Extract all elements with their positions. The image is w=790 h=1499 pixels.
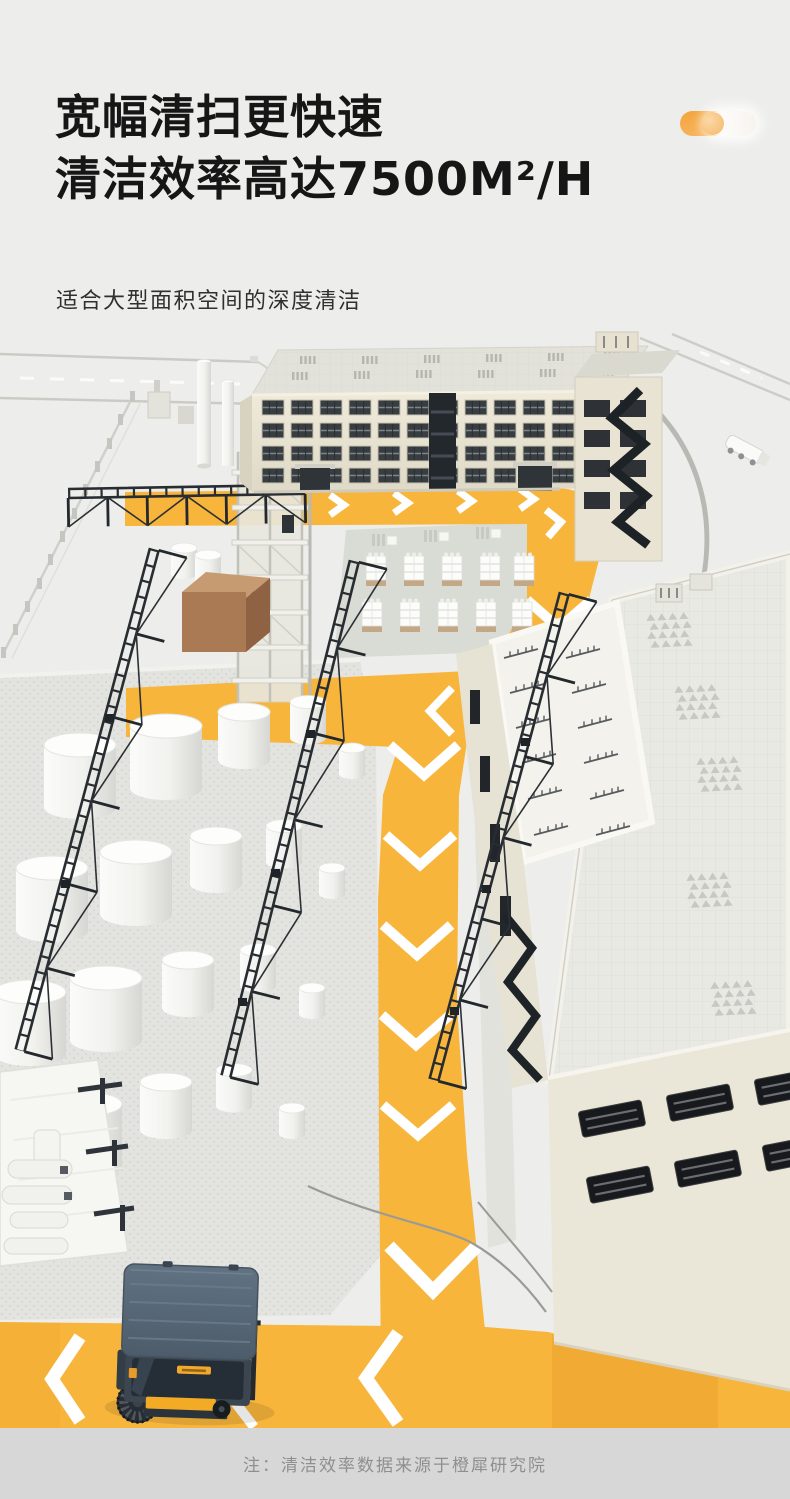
brown-storage-box: [182, 572, 270, 652]
toggle-icon: [680, 110, 758, 137]
footnote: 注：清洁效率数据来源于橙犀研究院: [243, 1451, 547, 1476]
factory-door: [518, 466, 552, 491]
title-line-2: 清洁效率高达7500M²/H: [55, 148, 594, 210]
sweeper-vehicle: [104, 1259, 280, 1428]
promo-page: 宽幅清扫更快速 清洁效率高达7500M²/H 适合大型面积空间的深度清洁 注：清…: [0, 0, 790, 1499]
sweeper-bumper: [146, 1396, 216, 1410]
warehouse-building: [456, 554, 790, 1390]
title-line-1: 宽幅清扫更快速: [55, 86, 594, 148]
page-title: 宽幅清扫更快速 清洁效率高达7500M²/H: [55, 86, 594, 210]
fire-escape-stairs: [429, 393, 456, 491]
factory-door: [300, 468, 330, 492]
gate-house: [148, 392, 170, 418]
warehouse-south-block: [548, 1030, 790, 1390]
page-subtitle: 适合大型面积空间的深度清洁: [56, 283, 362, 315]
toggle-knob: [701, 112, 724, 135]
sweeper-roof: [121, 1264, 258, 1361]
footer-strip: 注：清洁效率数据来源于橙犀研究院: [0, 1428, 790, 1499]
factory-scene-illustration: [0, 0, 790, 1499]
tanker-truck: [722, 434, 771, 471]
